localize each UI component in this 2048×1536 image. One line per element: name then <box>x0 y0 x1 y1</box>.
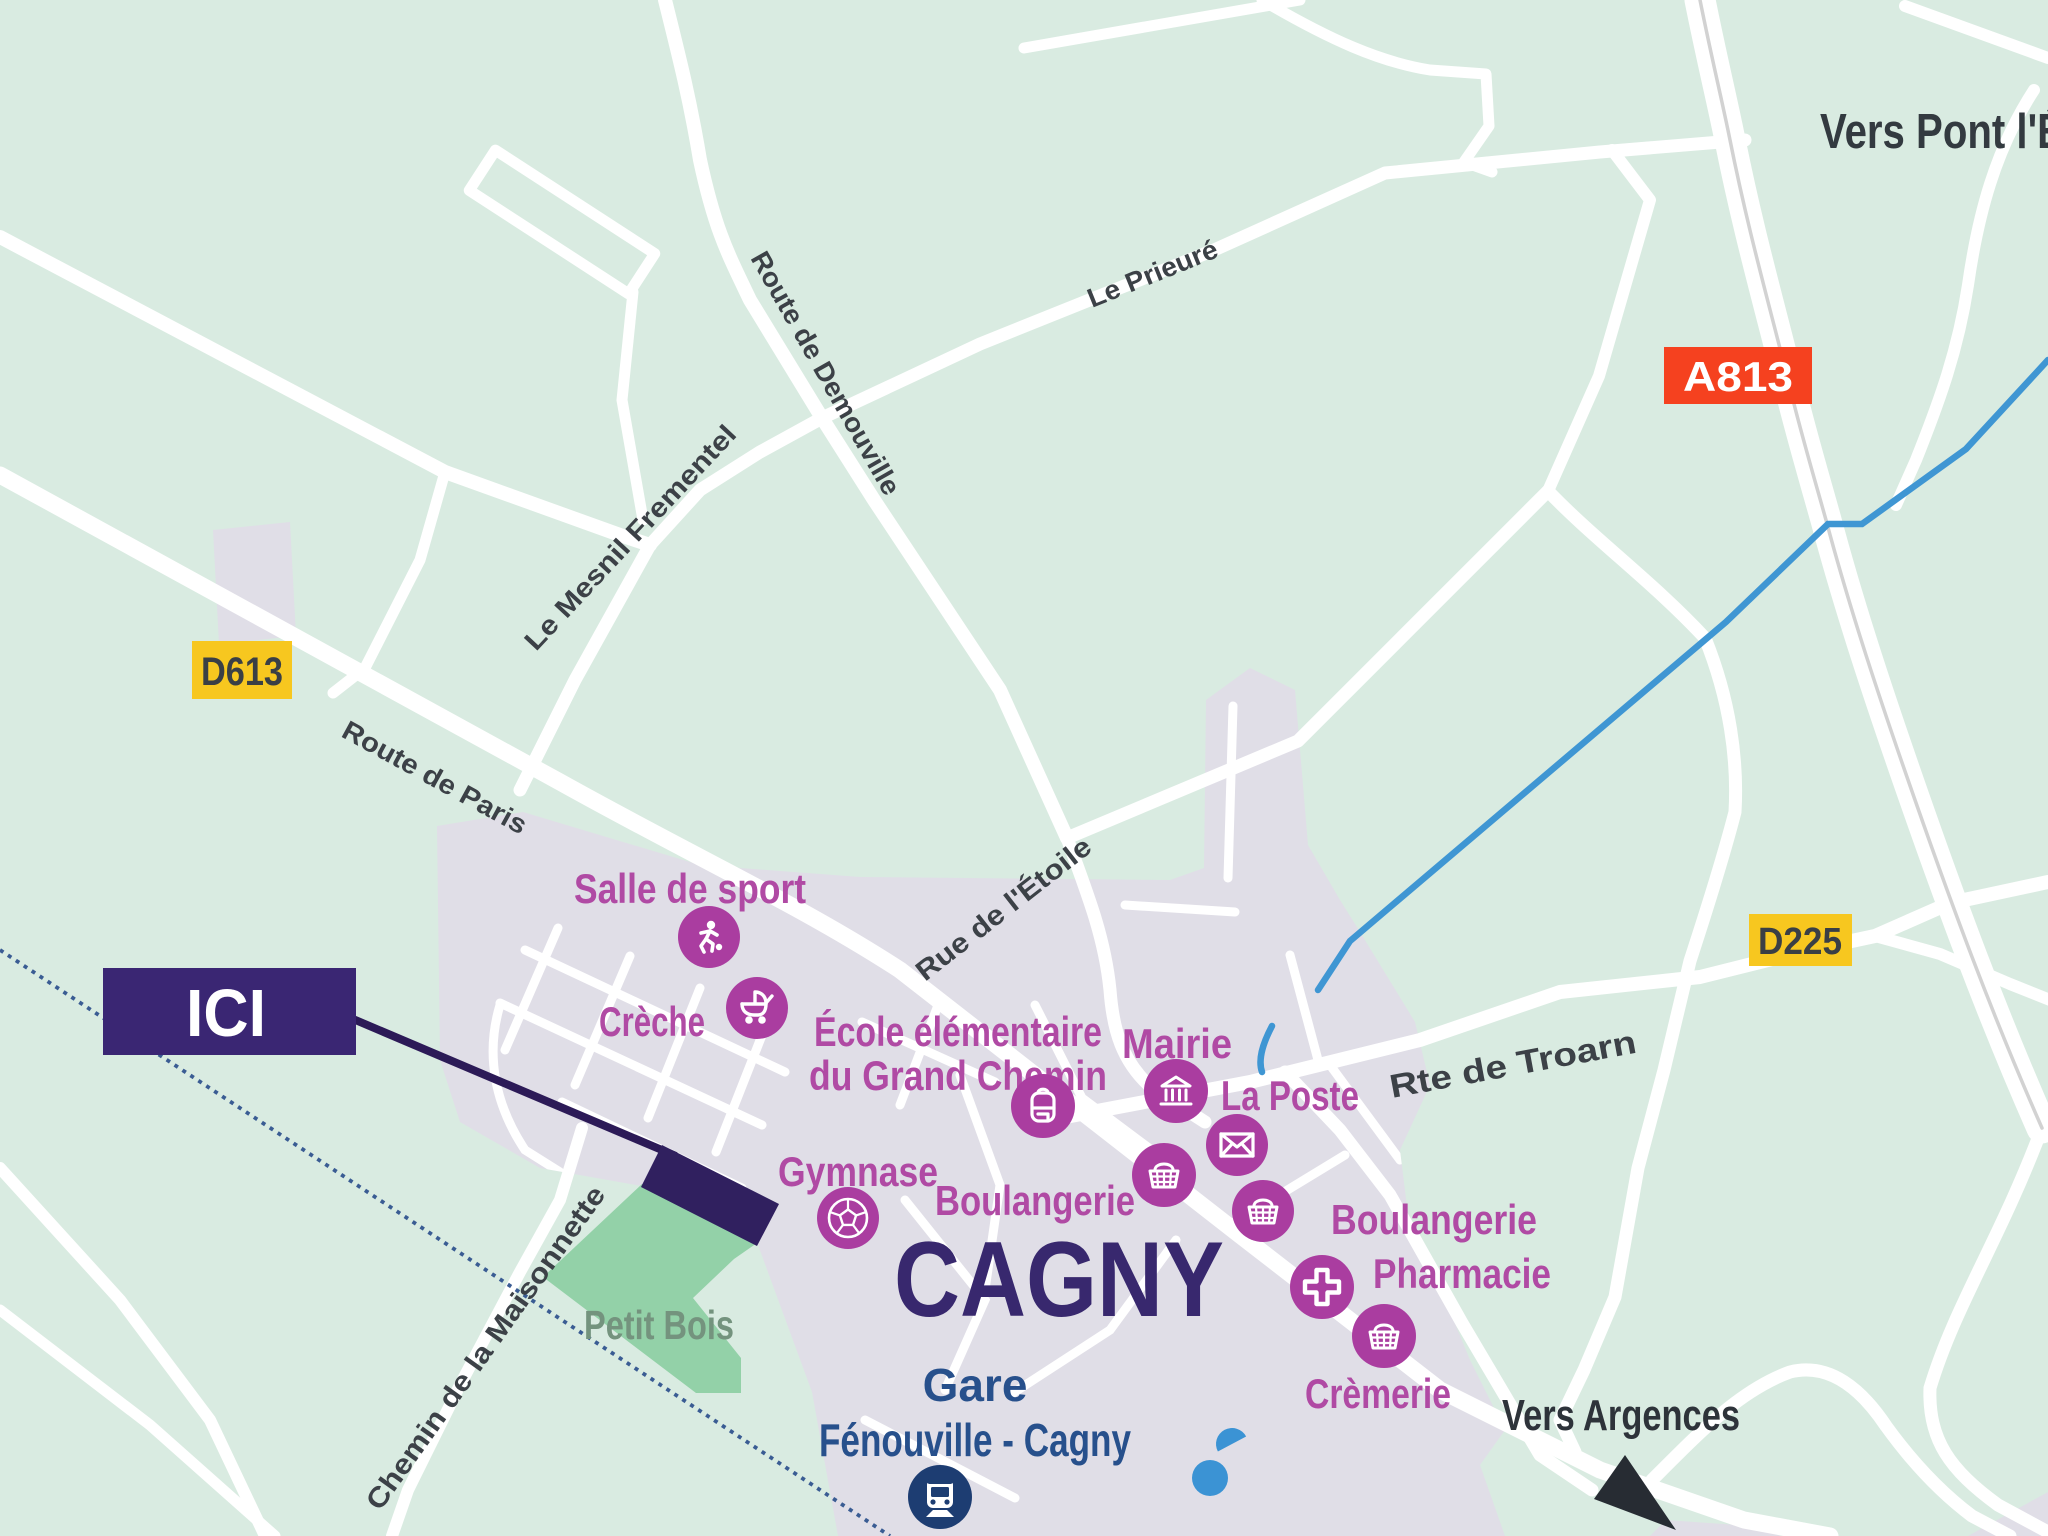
svg-text:Vers Argences: Vers Argences <box>1502 1391 1740 1440</box>
svg-text:A813: A813 <box>1683 353 1793 400</box>
svg-text:École élémentaire: École élémentaire <box>814 1008 1102 1055</box>
svg-text:Vers Pont l'Évêque: Vers Pont l'Évêque <box>1820 105 2048 159</box>
svg-text:Boulangerie: Boulangerie <box>935 1177 1135 1224</box>
svg-text:Gymnase: Gymnase <box>778 1148 938 1195</box>
svg-text:D613: D613 <box>201 650 283 694</box>
svg-text:Fénouville - Cagny: Fénouville - Cagny <box>819 1414 1131 1466</box>
svg-text:La Poste: La Poste <box>1221 1072 1359 1119</box>
svg-text:ICI: ICI <box>186 976 266 1051</box>
svg-text:Crèche: Crèche <box>599 998 705 1045</box>
svg-text:Boulangerie: Boulangerie <box>1331 1196 1537 1243</box>
svg-text:CAGNY: CAGNY <box>894 1219 1224 1339</box>
svg-text:Salle de sport: Salle de sport <box>574 865 806 912</box>
svg-text:D225: D225 <box>1758 921 1842 963</box>
svg-text:Petit Bois: Petit Bois <box>584 1302 734 1348</box>
svg-text:Crèmerie: Crèmerie <box>1305 1370 1451 1417</box>
svg-text:Pharmacie: Pharmacie <box>1373 1250 1551 1297</box>
svg-text:Gare: Gare <box>923 1359 1028 1411</box>
